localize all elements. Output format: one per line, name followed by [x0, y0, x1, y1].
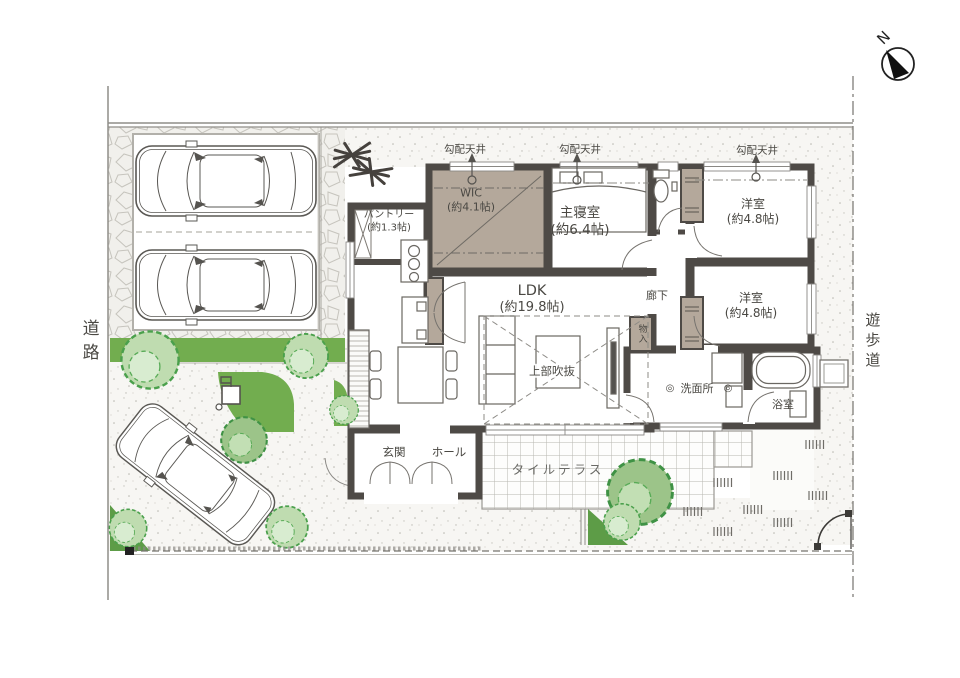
ceiling-note-2: 勾配天井 [559, 143, 601, 156]
room-size: (約19.8帖) [499, 300, 564, 316]
room-size: (約4.8帖) [727, 212, 779, 227]
room-name: パントリー [364, 210, 415, 221]
walkway-label: 遊歩道 [863, 312, 882, 372]
washroom-symbol-left: ◎ [666, 383, 675, 396]
floor-plan-canvas: N 道路 遊歩道 勾配天井 勾配天井 勾配天井 パントリー (約1.3帖) WI… [0, 0, 960, 678]
room-name: 洋室 [739, 291, 763, 305]
floor-plan-drawing [0, 0, 960, 678]
room-name: 主寝室 [560, 205, 601, 221]
room-size: (約1.3帖) [364, 222, 415, 235]
room-label-bathroom: 浴室 [772, 398, 794, 412]
room-name: 洋室 [741, 197, 765, 211]
room-label-pantry: パントリー (約1.3帖) [364, 210, 415, 235]
room-label-western-room-1: 洋室 (約4.8帖) [727, 197, 779, 227]
room-label-storage: 物入 [635, 324, 646, 344]
room-name: WIC [460, 186, 482, 199]
room-name: LDK [518, 283, 547, 299]
room-size: (約6.4帖) [550, 222, 609, 239]
room-size: (約4.1帖) [447, 200, 495, 214]
room-label-void: 上部吹抜 [527, 364, 577, 378]
compass [882, 48, 914, 80]
room-label-entrance: 玄関 [383, 445, 406, 459]
room-label-western-room-2: 洋室 (約4.8帖) [725, 291, 777, 321]
ceiling-note-3: 勾配天井 [736, 144, 778, 157]
ceiling-note-1: 勾配天井 [444, 143, 486, 156]
road-label: 道路 [77, 319, 98, 367]
room-label-washroom: 洗面所 [681, 382, 714, 396]
room-label-wic: WIC (約4.1帖) [447, 186, 495, 214]
room-label-hall: ホール [432, 445, 467, 459]
room-label-corridor: 廊下 [646, 289, 668, 303]
washroom-symbol-right: ◎ [724, 383, 733, 396]
car-parked-1 [136, 141, 316, 221]
outdoor-unit [820, 360, 848, 387]
room-label-ldk: LDK (約19.8帖) [499, 282, 564, 316]
room-size: (約4.8帖) [725, 306, 777, 321]
room-label-master-bedroom: 主寝室 (約6.4帖) [550, 205, 609, 239]
room-label-tile-terrace: タイルテラス [512, 462, 605, 478]
car-parked-2 [136, 245, 316, 325]
